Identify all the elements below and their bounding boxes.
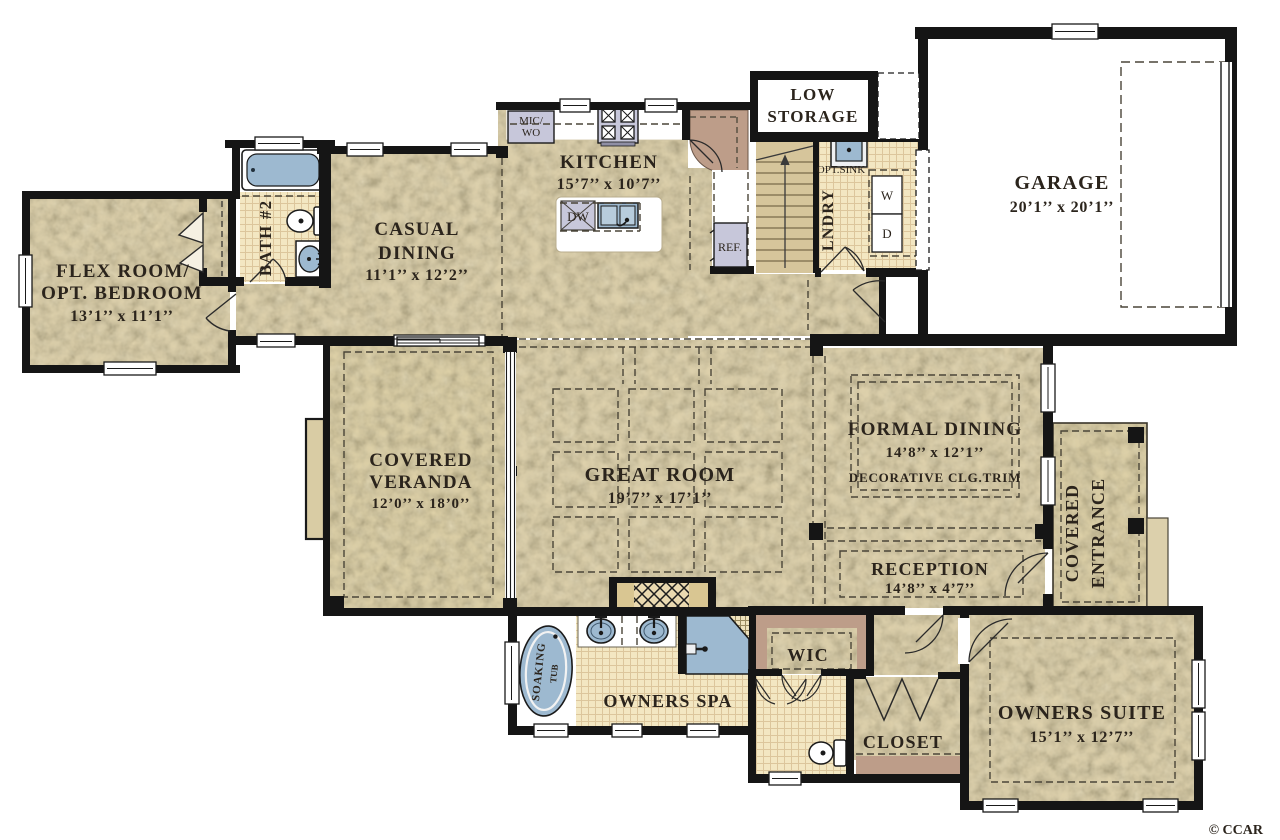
svg-text:13’1’’ x 11’1’’: 13’1’’ x 11’1’’: [70, 308, 174, 325]
svg-text:OPT.SINK: OPT.SINK: [817, 164, 865, 176]
svg-text:OWNERS SUITE: OWNERS SUITE: [998, 702, 1166, 724]
svg-text:15’1’’ x 12’7’’: 15’1’’ x 12’7’’: [1030, 729, 1134, 746]
svg-text:BATH #2: BATH #2: [256, 200, 275, 277]
svg-text:LNDRY: LNDRY: [820, 189, 837, 251]
svg-text:19’7’’ x 17’1’’: 19’7’’ x 17’1’’: [608, 490, 712, 507]
svg-text:© CCAR: © CCAR: [1209, 823, 1264, 838]
svg-text:DW: DW: [567, 209, 589, 224]
svg-text:STORAGE: STORAGE: [767, 107, 858, 126]
svg-text:14’8’’ x 4’7’’: 14’8’’ x 4’7’’: [885, 581, 975, 597]
svg-text:COVERED: COVERED: [369, 450, 472, 471]
svg-text:COVERED: COVERED: [1062, 484, 1082, 582]
svg-text:DINING: DINING: [378, 243, 456, 264]
svg-text:REF.: REF.: [718, 240, 742, 254]
svg-text:FLEX ROOM/: FLEX ROOM/: [56, 261, 190, 282]
svg-text:WIC: WIC: [787, 645, 829, 665]
svg-text:VERANDA: VERANDA: [369, 472, 472, 493]
svg-text:15’7’’ x 10’7’’: 15’7’’ x 10’7’’: [557, 176, 661, 193]
svg-text:FORMAL DINING: FORMAL DINING: [848, 419, 1022, 440]
svg-text:TUB: TUB: [548, 664, 560, 683]
svg-text:W: W: [881, 188, 894, 203]
svg-text:12’0’’ x 18’0’’: 12’0’’ x 18’0’’: [372, 496, 471, 512]
svg-text:CLOSET: CLOSET: [863, 732, 943, 752]
svg-text:MIC/: MIC/: [519, 115, 544, 127]
svg-text:KITCHEN: KITCHEN: [560, 152, 658, 173]
svg-text:LOW: LOW: [790, 85, 835, 104]
svg-text:WO: WO: [522, 127, 540, 139]
svg-text:11’1’’ x 12’2’’: 11’1’’ x 12’2’’: [365, 267, 469, 284]
svg-text:DECORATIVE CLG.TRIM: DECORATIVE CLG.TRIM: [849, 470, 1021, 485]
svg-text:GARAGE: GARAGE: [1015, 172, 1110, 194]
svg-text:ENTRANCE: ENTRANCE: [1088, 478, 1108, 589]
svg-text:GREAT ROOM: GREAT ROOM: [585, 464, 736, 486]
svg-text:OWNERS SPA: OWNERS SPA: [603, 691, 732, 711]
svg-text:OPT. BEDROOM: OPT. BEDROOM: [41, 283, 203, 304]
svg-text:CASUAL: CASUAL: [374, 219, 459, 240]
svg-text:D: D: [882, 226, 891, 241]
svg-text:RECEPTION: RECEPTION: [871, 559, 989, 579]
svg-text:14’8’’ x 12’1’’: 14’8’’ x 12’1’’: [886, 445, 985, 461]
svg-text:20’1’’ x 20’1’’: 20’1’’ x 20’1’’: [1010, 199, 1114, 216]
